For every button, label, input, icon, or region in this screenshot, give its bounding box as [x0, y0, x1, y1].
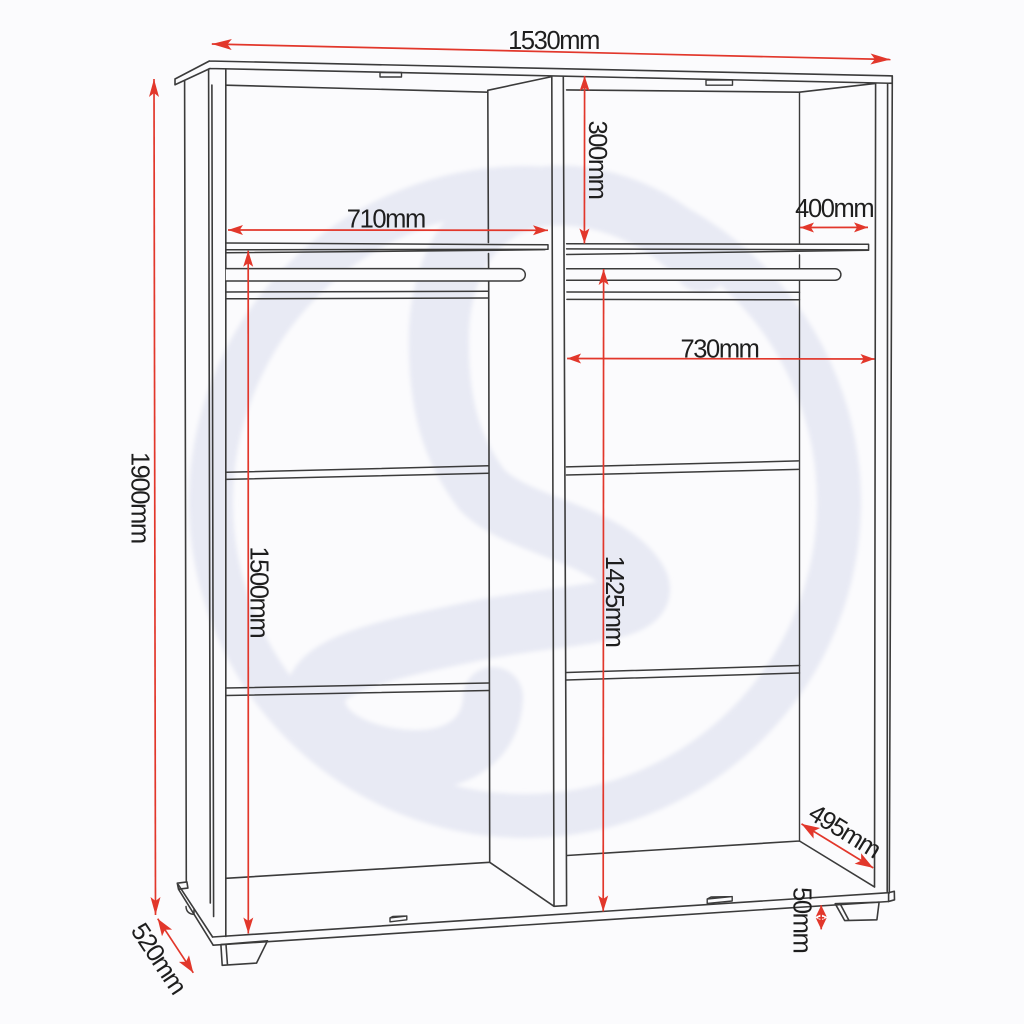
svg-text:1425mm: 1425mm: [600, 556, 628, 647]
svg-text:400mm: 400mm: [795, 195, 873, 223]
svg-text:50mm: 50mm: [788, 887, 816, 952]
svg-text:1500mm: 1500mm: [244, 546, 272, 637]
svg-text:710mm: 710mm: [347, 205, 425, 233]
svg-text:730mm: 730mm: [680, 335, 758, 363]
svg-text:1900mm: 1900mm: [126, 452, 154, 543]
svg-text:300mm: 300mm: [583, 120, 611, 198]
svg-text:1530mm: 1530mm: [508, 27, 599, 55]
